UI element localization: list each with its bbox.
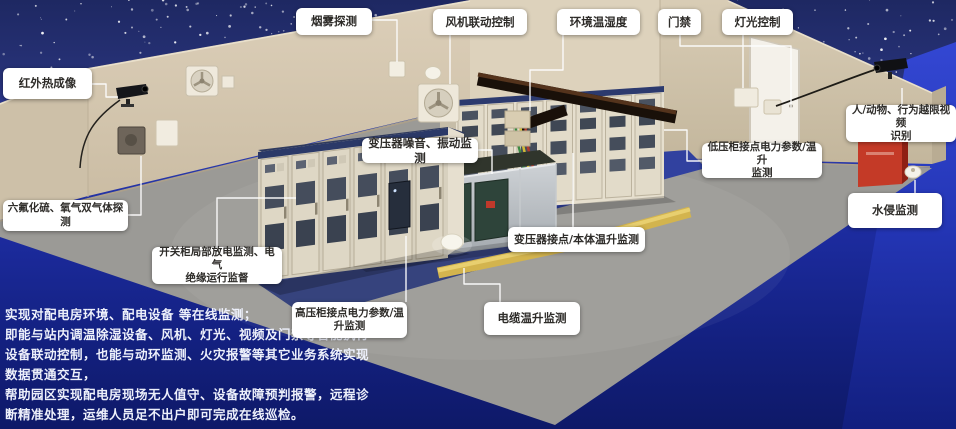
temp-humidity-sensor xyxy=(505,111,530,146)
label-lighting-control: 灯光控制 xyxy=(722,9,793,35)
label-infrared-thermal-imaging: 红外热成像 xyxy=(3,68,92,99)
description-text: 实现对配电房环境、配电设备 等在线监测； 即能与站内调温除湿设备、风机、灯光、视… xyxy=(5,305,510,425)
label-env-temp-humidity: 环境温湿度 xyxy=(557,9,640,35)
label-smoke-detection: 烟雾探测 xyxy=(296,8,372,35)
label-transformer-contact-temp: 变压器接点/本体温升监测 xyxy=(508,227,645,252)
wall-panel xyxy=(764,100,781,114)
light-switch xyxy=(734,88,758,107)
label-access-control: 门禁 xyxy=(658,9,701,35)
alarm-dome xyxy=(425,67,441,80)
exhaust-fan xyxy=(186,66,218,96)
label-cable-temp-rise: 电缆温升监测 xyxy=(484,302,580,335)
power-room-monitoring-scene: 烟雾探测 风机联动控制 环境温湿度 门禁 灯光控制 红外热成像 六氟化硫、氧气双… xyxy=(0,0,956,429)
linked-exhaust-fan xyxy=(418,84,459,122)
label-sf6-o2-gas-detection: 六氟化硫、氧气双气体探测 xyxy=(3,200,128,231)
label-video-behavior-recognition: 人/动物、行为越限视频 识别 xyxy=(846,105,956,142)
label-lv-cabinet-power-temp: 低压柜接点电力参数/温升 监测 xyxy=(702,143,822,178)
water-sensor xyxy=(905,166,921,178)
smoke-detector xyxy=(389,61,405,77)
label-water-intrusion: 水侵监测 xyxy=(848,193,942,228)
label-switchgear-partial-discharge: 开关柜局部放电监测、电气 绝缘运行监督 xyxy=(152,247,282,284)
wall-sensor-box xyxy=(156,120,178,146)
label-transformer-noise-vibration: 变压器噪音、振动监测 xyxy=(362,138,478,163)
label-hv-cabinet-power-temp: 高压柜接点电力参数/温 升监测 xyxy=(292,302,407,338)
gas-sensor xyxy=(118,127,145,154)
wall-switch-box xyxy=(222,76,234,88)
label-fan-linkage-control: 风机联动控制 xyxy=(433,9,527,35)
fire-extinguisher-cabinet xyxy=(858,136,908,187)
